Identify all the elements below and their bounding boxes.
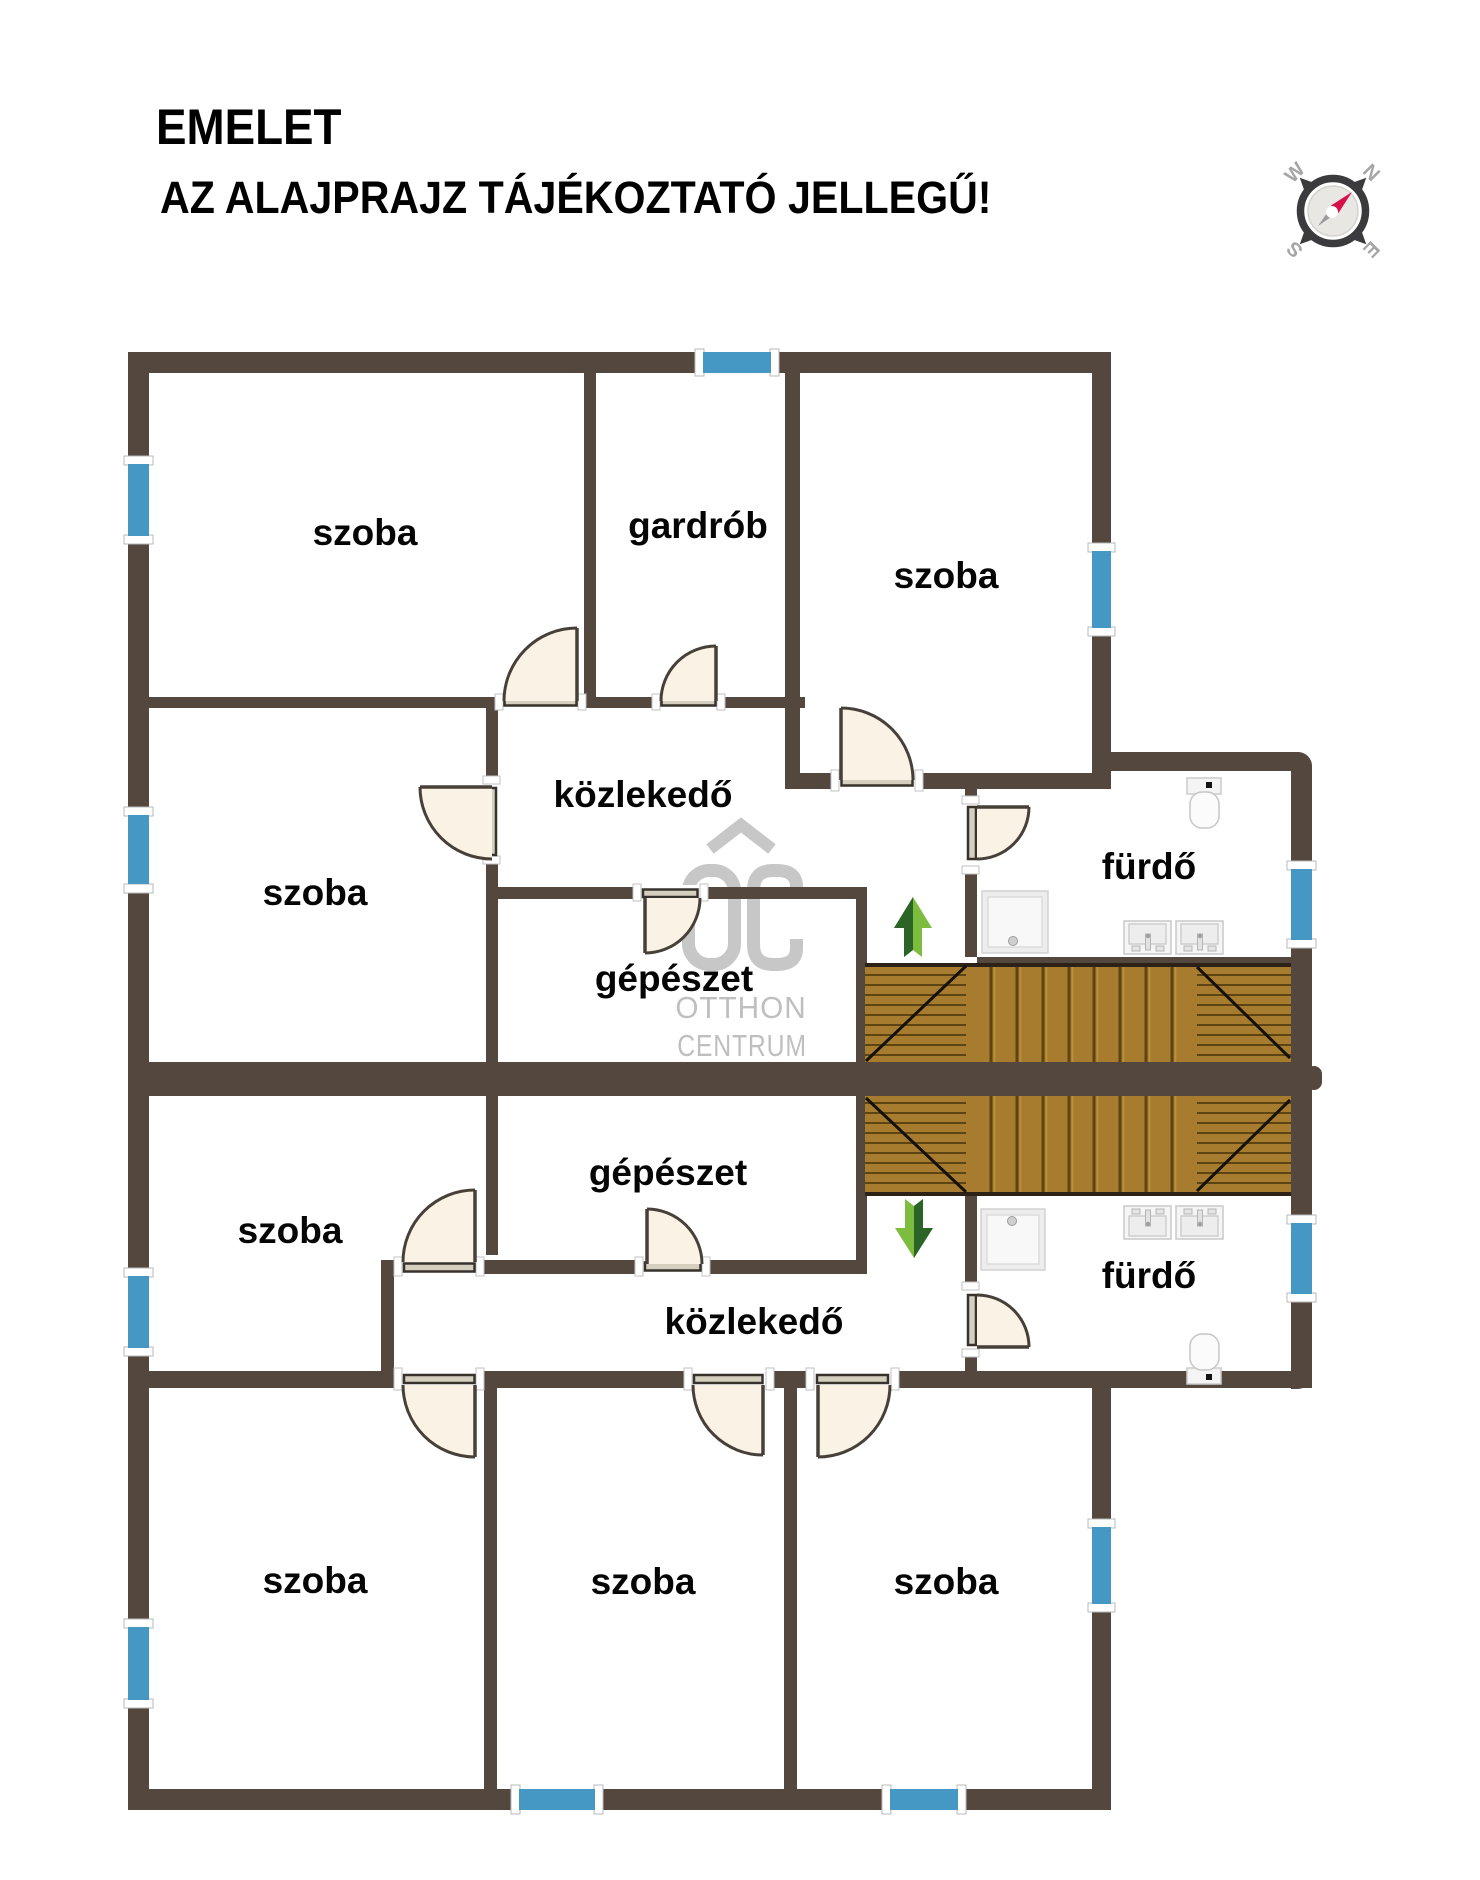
svg-text:gardrób: gardrób <box>628 505 768 546</box>
svg-text:gépészet: gépészet <box>589 1152 747 1193</box>
svg-text:szoba: szoba <box>263 1560 368 1601</box>
svg-text:szoba: szoba <box>238 1210 343 1251</box>
svg-text:szoba: szoba <box>894 1561 999 1602</box>
svg-text:gépészet: gépészet <box>595 958 753 999</box>
svg-text:AZ ALAJPRAJZ TÁJÉKOZTATÓ JELLE: AZ ALAJPRAJZ TÁJÉKOZTATÓ JELLEGŰ! <box>160 172 992 223</box>
svg-text:közlekedő: közlekedő <box>554 774 733 815</box>
svg-text:EMELET: EMELET <box>156 100 341 155</box>
svg-text:fürdő: fürdő <box>1102 1255 1197 1296</box>
svg-text:közlekedő: közlekedő <box>665 1301 844 1342</box>
svg-text:CENTRUM: CENTRUM <box>677 1028 807 1062</box>
svg-text:szoba: szoba <box>894 555 999 596</box>
svg-text:fürdő: fürdő <box>1102 846 1197 887</box>
svg-text:szoba: szoba <box>591 1561 696 1602</box>
svg-text:szoba: szoba <box>313 512 418 553</box>
svg-text:szoba: szoba <box>263 872 368 913</box>
